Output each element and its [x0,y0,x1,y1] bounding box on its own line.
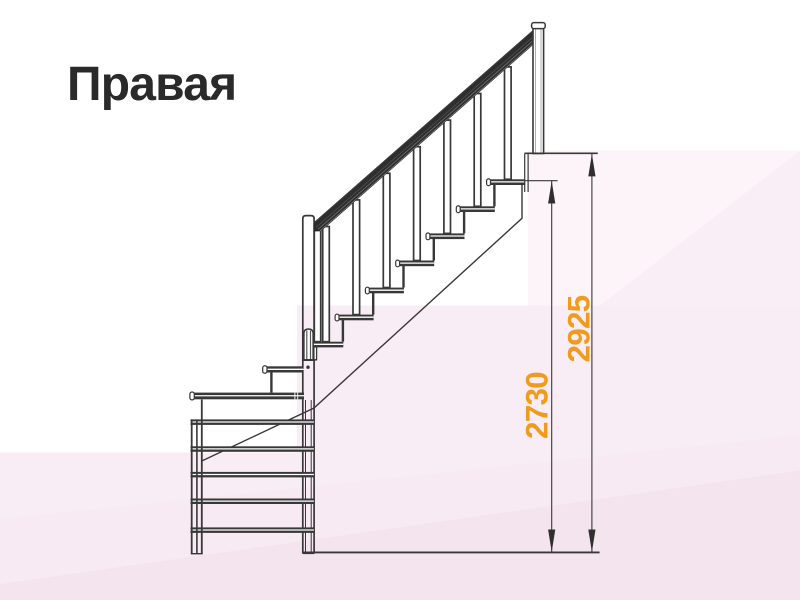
svg-text:2925: 2925 [561,295,597,362]
svg-text:Правая: Правая [67,58,236,111]
svg-text:2730: 2730 [519,372,555,439]
